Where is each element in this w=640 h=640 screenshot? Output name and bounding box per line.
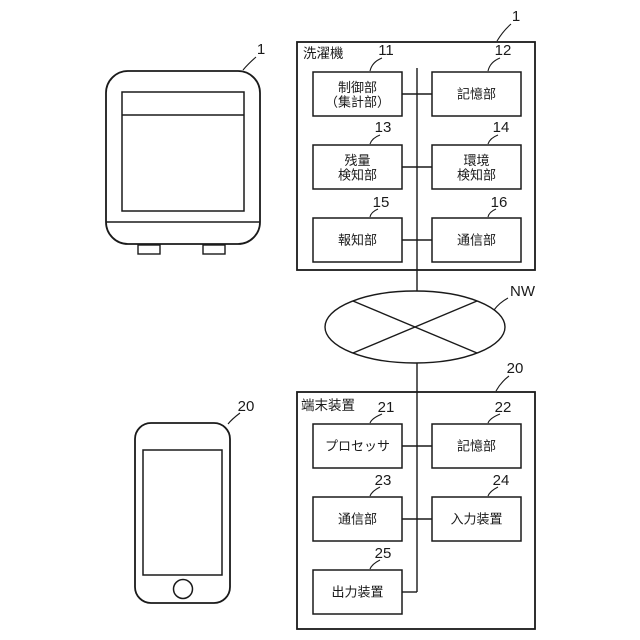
block-13-label-line1: 残量 (344, 153, 370, 168)
block-13-ref: 13 (375, 119, 392, 136)
figure-canvas: 1 20 洗濯機 1 制御部 （集計部） 11 記憶部 12 残量 検知部 (0, 0, 640, 640)
block-14-ref: 14 (493, 119, 510, 136)
block-24-ref: 24 (493, 472, 510, 489)
block-13-label-line2: 検知部 (338, 168, 377, 183)
washer-system-ref-leader (497, 24, 511, 41)
washer-system-diagram: 洗濯機 1 制御部 （集計部） 11 記憶部 12 残量 検知部 13 環境 検… (297, 8, 535, 291)
washer-system-title: 洗濯機 (303, 46, 344, 61)
block-12-ref: 12 (495, 42, 512, 59)
block-14-label-line2: 検知部 (457, 168, 496, 183)
block-21-label: プロセッサ (325, 439, 390, 454)
block-14-ref-leader (488, 135, 498, 144)
phone-home-button (174, 580, 193, 599)
phone-screen (143, 450, 222, 575)
washer-door-panel (122, 92, 244, 211)
washer-drawing: 1 (106, 41, 265, 254)
block-24-label: 入力装置 (450, 512, 502, 527)
block-23-ref: 23 (375, 472, 392, 489)
network-symbol: NW (325, 283, 536, 363)
washer-system-outline (297, 42, 535, 270)
block-12-label: 記憶部 (457, 87, 496, 102)
block-16-label: 通信部 (457, 233, 496, 248)
block-11-label-line2: （集計部） (325, 95, 390, 110)
block-13-ref-leader (370, 135, 380, 144)
block-15-ref: 15 (373, 194, 390, 211)
block-16-ref: 16 (491, 194, 508, 211)
washer-body-outline (106, 71, 260, 244)
washer-foot-left (138, 245, 160, 254)
block-22-label: 記憶部 (457, 439, 496, 454)
block-25-ref: 25 (375, 545, 392, 562)
patent-figure: 1 20 洗濯機 1 制御部 （集計部） 11 記憶部 12 残量 検知部 (0, 0, 640, 640)
network-ref: NW (510, 283, 536, 300)
block-25-label: 出力装置 (331, 585, 383, 600)
network-ref-leader (494, 298, 508, 310)
block-14-label-line1: 環境 (463, 153, 489, 168)
terminal-system-ref: 20 (507, 360, 524, 377)
phone-drawing-ref: 20 (238, 398, 255, 415)
block-23-label: 通信部 (338, 512, 377, 527)
washer-drawing-ref: 1 (257, 41, 265, 58)
terminal-system-diagram: 端末装置 20 プロセッサ 21 記憶部 22 通信部 23 入力装置 24 出… (297, 360, 535, 629)
block-21-ref: 21 (378, 399, 395, 416)
block-12-ref-leader (488, 58, 500, 71)
washer-ref-leader (243, 57, 256, 70)
block-11-ref-leader (370, 58, 382, 71)
phone-drawing: 20 (135, 398, 254, 603)
block-11-label-line1: 制御部 (338, 80, 377, 95)
washer-system-ref: 1 (512, 8, 520, 25)
block-11-ref: 11 (378, 42, 394, 59)
terminal-system-title: 端末装置 (301, 398, 355, 413)
block-22-ref: 22 (495, 399, 512, 416)
block-15-label: 報知部 (338, 233, 377, 248)
washer-foot-right (203, 245, 225, 254)
terminal-system-ref-leader (496, 376, 509, 391)
